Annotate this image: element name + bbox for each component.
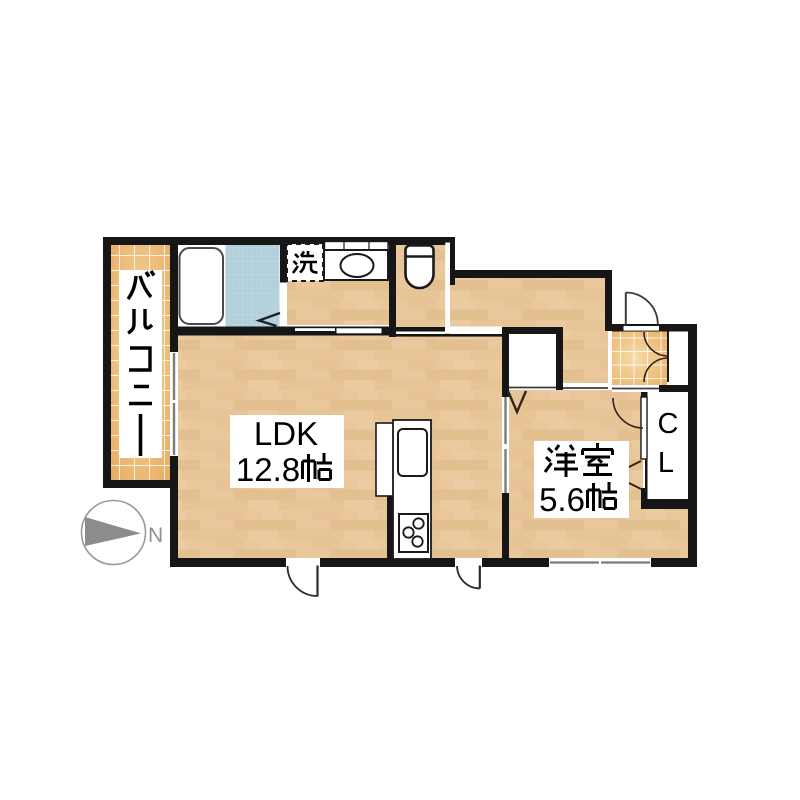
svg-text:LDK: LDK xyxy=(254,415,318,452)
svg-text:L: L xyxy=(658,447,674,479)
svg-text:5.6: 5.6 xyxy=(539,481,585,518)
svg-text:C: C xyxy=(658,408,679,440)
svg-text:N: N xyxy=(148,524,163,547)
svg-text:12.8: 12.8 xyxy=(236,451,300,488)
